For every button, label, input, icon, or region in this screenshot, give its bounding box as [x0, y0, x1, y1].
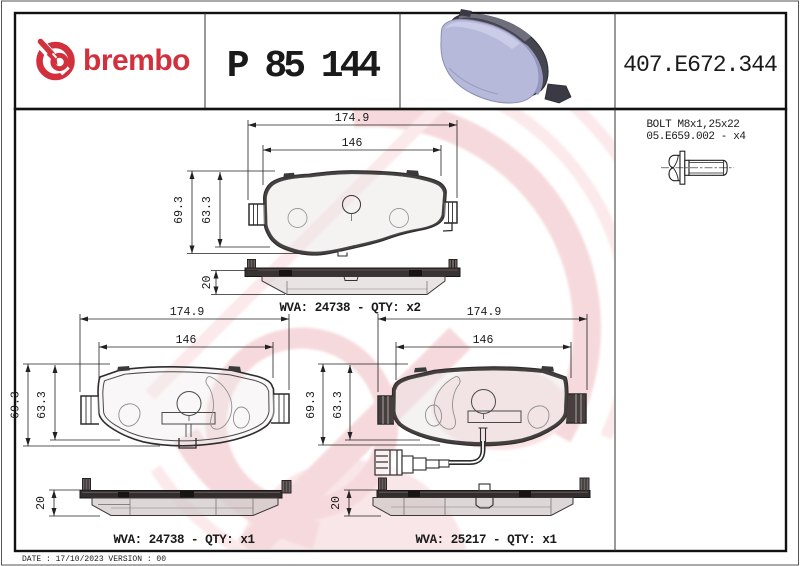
svg-text:63.3: 63.3 — [332, 391, 345, 419]
svg-text:69.3: 69.3 — [173, 196, 186, 224]
svg-text:WVA: 24738 - QTY: x1: WVA: 24738 - QTY: x1 — [113, 533, 254, 547]
svg-text:WVA: 25217 - QTY: x1: WVA: 25217 - QTY: x1 — [415, 533, 556, 547]
svg-text:WVA: 24738 - QTY: x2: WVA: 24738 - QTY: x2 — [279, 301, 420, 315]
svg-text:BOLT M8x1,25x22: BOLT M8x1,25x22 — [646, 119, 739, 131]
svg-text:DATE : 17/10/2023 VERSION : 00: DATE : 17/10/2023 VERSION : 00 — [22, 555, 166, 564]
svg-text:174.9: 174.9 — [335, 112, 370, 125]
svg-text:63.3: 63.3 — [201, 196, 214, 224]
svg-text:146: 146 — [176, 334, 197, 347]
svg-text:20: 20 — [201, 276, 214, 290]
svg-text:69.3: 69.3 — [305, 391, 318, 419]
svg-text:407.E672.344: 407.E672.344 — [623, 52, 777, 78]
svg-text:174.9: 174.9 — [170, 306, 205, 319]
svg-text:05.E659.002 - x4: 05.E659.002 - x4 — [646, 131, 746, 143]
svg-text:174.9: 174.9 — [467, 306, 502, 319]
svg-text:brembo: brembo — [83, 44, 190, 77]
svg-text:P 85 144: P 85 144 — [227, 45, 381, 88]
svg-text:20: 20 — [35, 496, 48, 510]
svg-text:69.3: 69.3 — [10, 391, 23, 419]
svg-text:63.3: 63.3 — [36, 391, 49, 419]
svg-text:20: 20 — [330, 496, 343, 510]
svg-text:146: 146 — [473, 334, 494, 347]
svg-text:146: 146 — [342, 137, 363, 150]
